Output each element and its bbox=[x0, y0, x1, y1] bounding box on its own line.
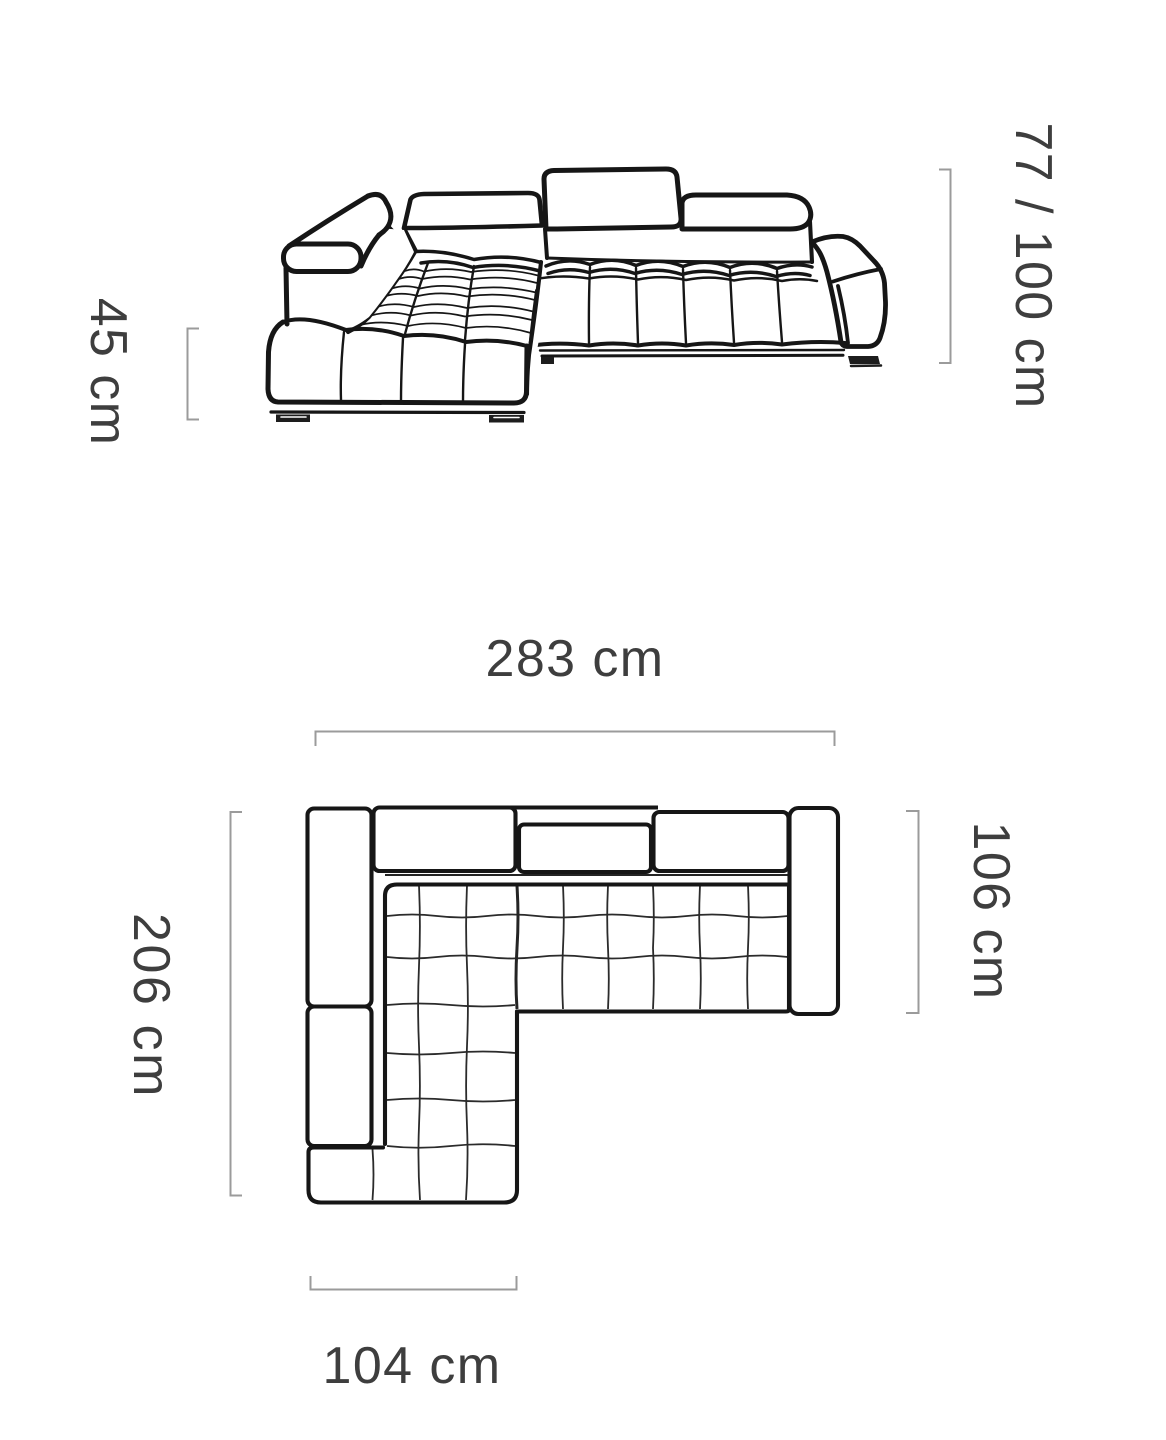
svg-text:283 cm: 283 cm bbox=[486, 630, 665, 688]
svg-text:206 cm: 206 cm bbox=[122, 913, 180, 1099]
svg-text:45 cm: 45 cm bbox=[79, 298, 137, 447]
svg-text:104 cm: 104 cm bbox=[323, 1337, 502, 1395]
svg-text:77 / 100 cm: 77 / 100 cm bbox=[1004, 122, 1062, 409]
svg-text:106 cm: 106 cm bbox=[962, 822, 1020, 1001]
